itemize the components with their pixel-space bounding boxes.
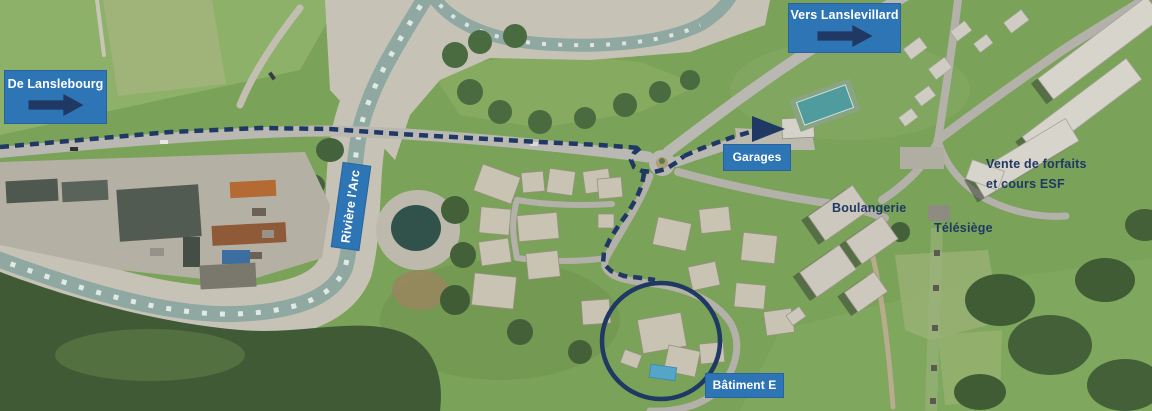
- route-dashed-roundabout: [631, 148, 684, 172]
- direction-arrow-icon: [27, 94, 85, 116]
- sign-batiment-e-label: Bâtiment E: [713, 379, 777, 392]
- label-vente-forfaits-line1: Vente de forfaits: [986, 154, 1087, 174]
- route-arrowhead-icon: [752, 116, 785, 142]
- label-telesiege: Télésiège: [934, 221, 993, 235]
- sign-riviere-larc-label: Rivière l'Arc: [339, 169, 363, 244]
- aerial-map: De Lanslebourg Vers Lanslevillard Garage…: [0, 0, 1152, 411]
- label-boulangerie: Boulangerie: [832, 201, 906, 215]
- direction-arrow-icon: [813, 25, 877, 47]
- label-vente-forfaits: Vente de forfaits et cours ESF: [986, 154, 1087, 194]
- sign-batiment-e: Bâtiment E: [705, 373, 784, 398]
- sign-de-lanslebourg-label: De Lanslebourg: [8, 78, 104, 92]
- route-overlay: [0, 0, 1152, 411]
- route-dashed-main: [0, 128, 640, 148]
- sign-vers-lanslevillard-label: Vers Lanslevillard: [790, 9, 898, 23]
- sign-garages-label: Garages: [733, 151, 782, 164]
- batiment-e-highlight-circle: [602, 283, 720, 399]
- sign-de-lanslebourg: De Lanslebourg: [4, 70, 107, 124]
- label-vente-forfaits-line2: et cours ESF: [986, 174, 1087, 194]
- sign-vers-lanslevillard: Vers Lanslevillard: [788, 3, 901, 53]
- sign-garages: Garages: [723, 144, 791, 171]
- route-dashed-south: [603, 173, 655, 280]
